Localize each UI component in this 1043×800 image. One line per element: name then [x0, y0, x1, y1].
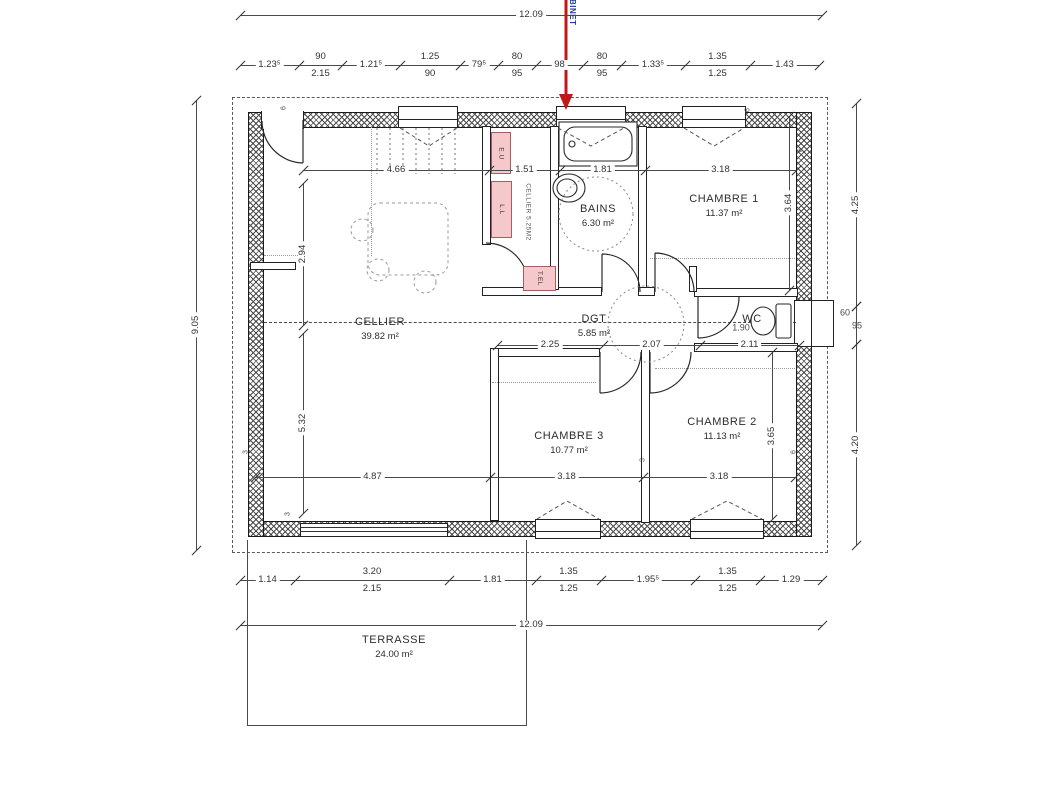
dim-window-height: 95	[852, 322, 862, 331]
dim-label: 1.51	[512, 165, 537, 175]
wall-mark: 6	[744, 108, 753, 112]
dim-label: 1.25	[559, 584, 578, 594]
dim-label: 95	[597, 69, 608, 79]
dim-label: 80	[597, 52, 608, 62]
dim-label: 80	[512, 52, 523, 62]
dim-label: 1.95⁵	[634, 575, 662, 585]
dim-label: 2.15	[311, 69, 330, 79]
dim-label: 1.35	[708, 52, 727, 62]
dim-label: 4.25	[851, 192, 861, 217]
dim-label: 90	[425, 69, 436, 79]
wall-mark: 3	[284, 512, 293, 516]
dim-label: 3.18	[707, 472, 732, 482]
floor-plan-canvas: ROBINET E.U L.L T.EL CELLIER 5.25M2 CELL…	[0, 0, 1043, 800]
dim-label: 9.05	[191, 313, 201, 338]
wall-mark: 3	[242, 450, 251, 454]
dim-label: 2.94	[298, 242, 308, 267]
dim-label: 98	[551, 60, 568, 70]
dim-label: 4.87	[360, 472, 385, 482]
wall-mark: 6	[797, 148, 806, 152]
dim-label: 2.11	[738, 340, 762, 350]
dim-label: 79⁵	[469, 60, 490, 70]
dim-label: 1.81	[590, 165, 615, 175]
wall-mark: 6	[280, 106, 289, 110]
dim-label: 3.64	[784, 191, 794, 216]
dim-label: 1.25	[718, 584, 737, 594]
dim-label: 2.15	[363, 584, 382, 594]
dimensions-layer: 12.091.23⁵902.151.21⁵1.259079⁵8095988095…	[0, 0, 1043, 800]
dim-label: 4.66	[384, 165, 409, 175]
dim-label: 1.29	[779, 575, 804, 585]
dim-label: 12.09	[516, 10, 546, 20]
dim-label: 4.20	[851, 432, 861, 457]
dim-label: 1.23⁵	[255, 60, 283, 70]
dim-window-width: 60	[840, 309, 850, 318]
dim-label: 3.20	[363, 567, 382, 577]
dim-label: 12.09	[516, 620, 546, 630]
dim-label: 2.25	[538, 340, 563, 350]
dim-label: 1.35	[718, 567, 737, 577]
dim-label: 5.32	[298, 411, 308, 436]
dim-top-chain	[240, 65, 819, 66]
dim-bottom-chain	[240, 580, 822, 581]
dim-label: 3.18	[708, 165, 733, 175]
dim-wc-width: 1.90	[732, 324, 750, 333]
dim-label: 1.43	[772, 60, 797, 70]
dim-label: 90	[315, 52, 326, 62]
dim-label: 1.33⁵	[639, 60, 667, 70]
dim-label: 1.14	[255, 575, 280, 585]
dim-label: 95	[512, 69, 523, 79]
dim-label: 3.18	[554, 472, 579, 482]
dim-label: 1.81	[480, 575, 505, 585]
wall-mark: 6	[790, 450, 799, 454]
dim-label: 3.65	[767, 423, 777, 448]
dim-label: 2.07	[639, 340, 664, 350]
dim-label: 1.21⁵	[357, 60, 385, 70]
dim-label: 1.25	[708, 69, 727, 79]
dim-label: 1.25	[421, 52, 440, 62]
dim-label: 1.35	[559, 567, 578, 577]
wall-mark: 3	[639, 458, 648, 462]
